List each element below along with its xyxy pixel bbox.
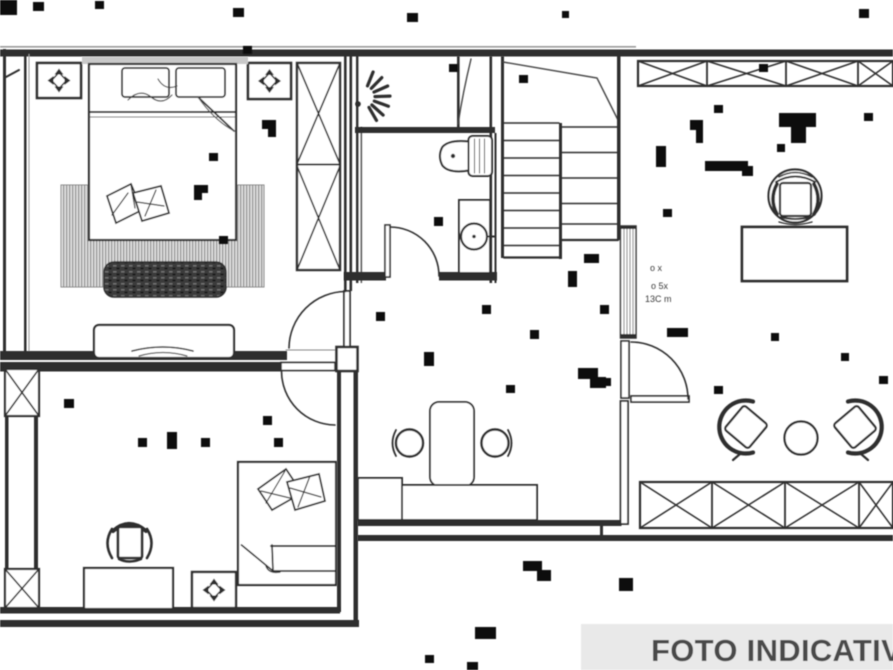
svg-text:o x: o x: [650, 263, 663, 273]
svg-text:o 5x: o 5x: [651, 281, 669, 291]
svg-text:FOTO INDICATIV: FOTO INDICATIV: [651, 633, 893, 668]
svg-text:13C m: 13C m: [645, 294, 672, 304]
